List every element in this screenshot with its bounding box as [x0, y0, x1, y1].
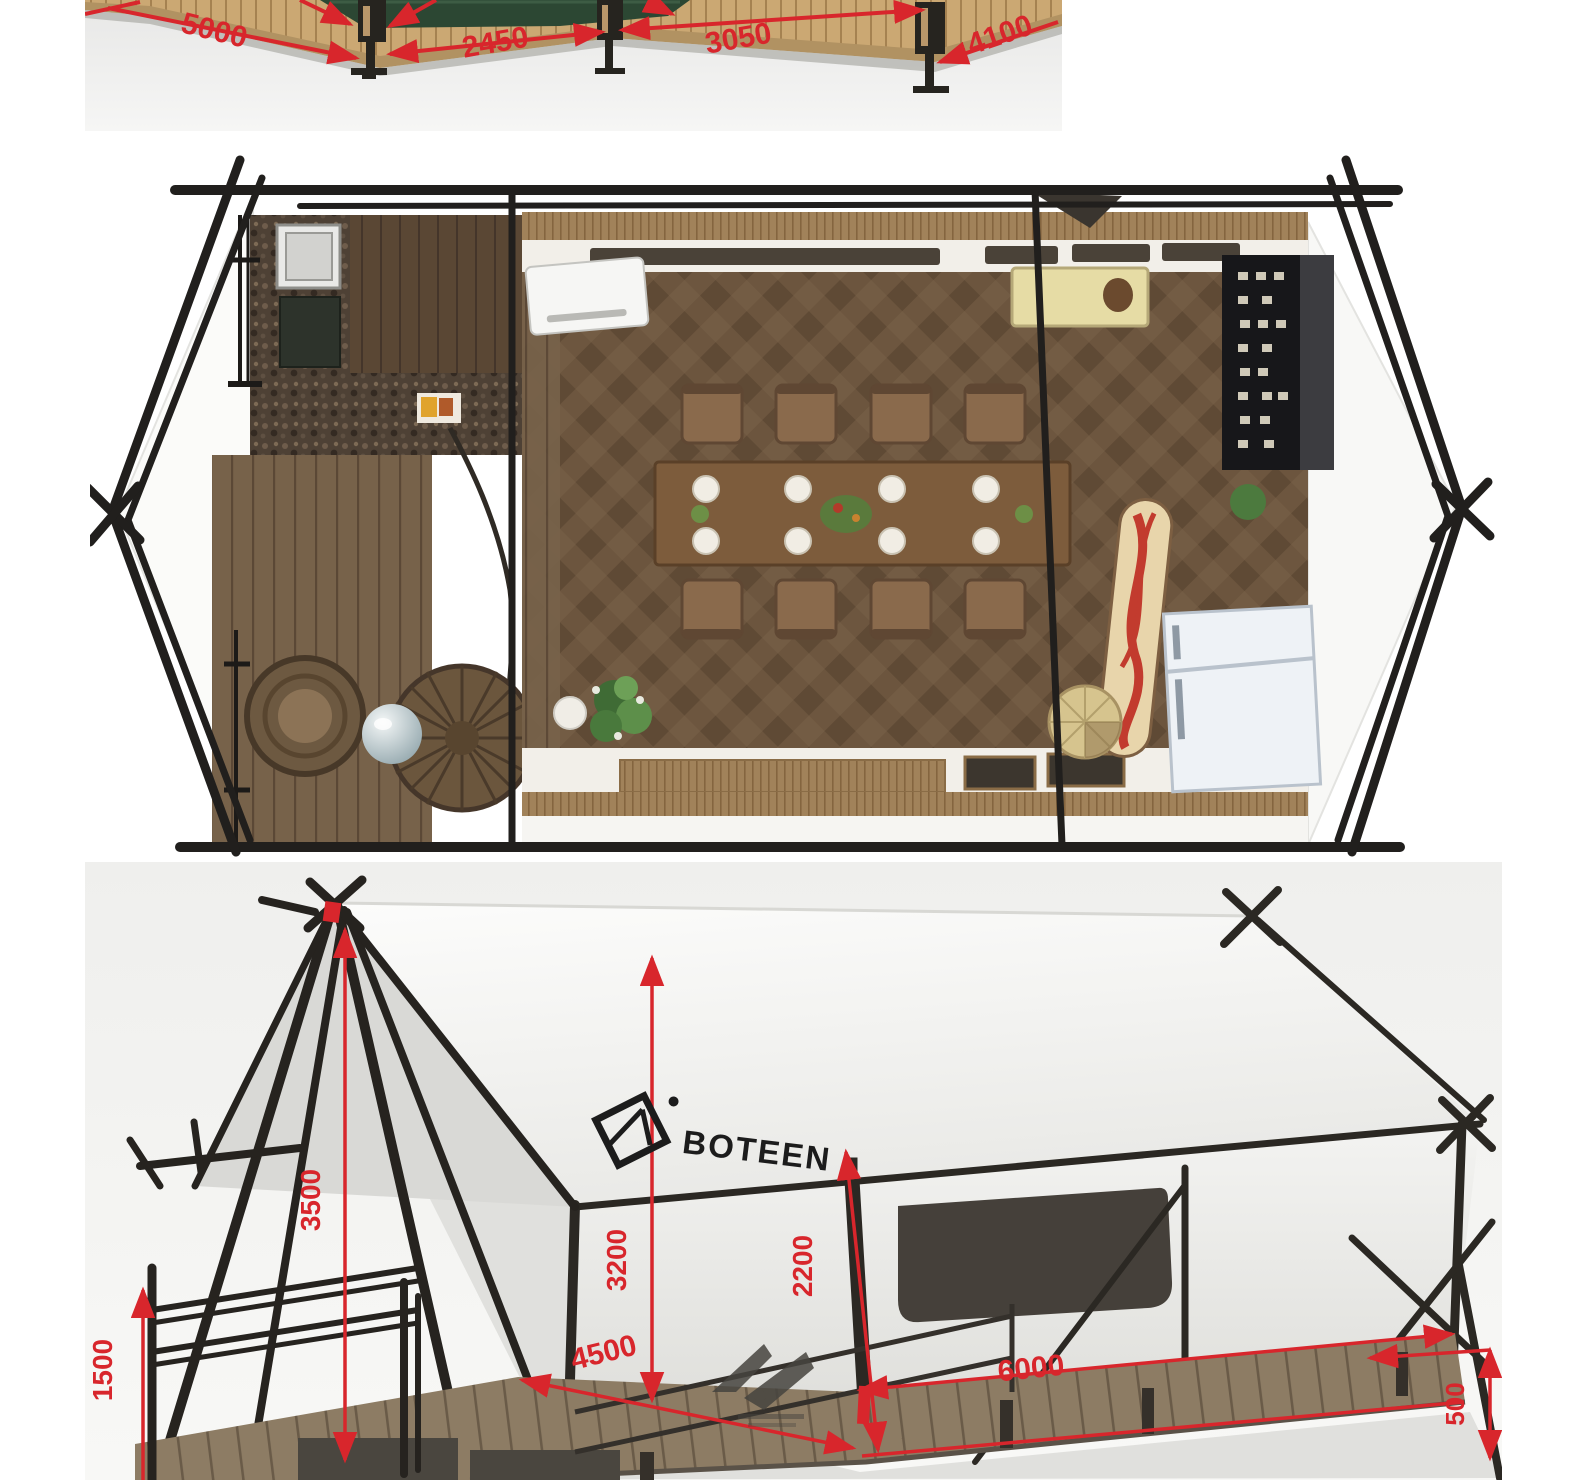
- glass-table: [362, 704, 422, 764]
- floor-plan-figure: [90, 145, 1500, 857]
- dining-table: [655, 462, 1070, 565]
- campfire-tray: [417, 393, 461, 423]
- grill: [277, 225, 340, 288]
- dim-2200: 2200: [787, 1235, 818, 1297]
- bamboo-blind-bottom: [522, 792, 1308, 816]
- ac-unit: [525, 257, 648, 335]
- bamboo-blind-top: [522, 212, 1308, 240]
- pole-red-band: [857, 1386, 871, 1425]
- centerpiece: [820, 495, 872, 533]
- privacy-wall: [350, 215, 535, 373]
- cat: [1103, 278, 1133, 312]
- dim-500: 500: [1440, 1382, 1470, 1425]
- dim-6000: 6000: [996, 1349, 1066, 1389]
- floor-mat: [280, 297, 340, 367]
- plant-right: [1230, 484, 1266, 520]
- dim-3200: 3200: [601, 1229, 632, 1291]
- side-view-figure: 3500 1500 3200 2200 4500 6000 500 BOTEEN: [85, 862, 1502, 1480]
- bench: [1012, 268, 1148, 326]
- porch-deck: [212, 455, 432, 846]
- fridge: [1163, 606, 1320, 792]
- shelf-unit: [1222, 255, 1334, 470]
- apex-red-band: [323, 901, 342, 923]
- dim-1500: 1500: [87, 1339, 118, 1401]
- wicker-chair-left: [247, 658, 363, 774]
- dim-3500: 3500: [295, 1169, 326, 1231]
- bamboo-mat: [620, 760, 945, 792]
- top-view-figure: 5000 2450 3050 4100: [85, 0, 1062, 131]
